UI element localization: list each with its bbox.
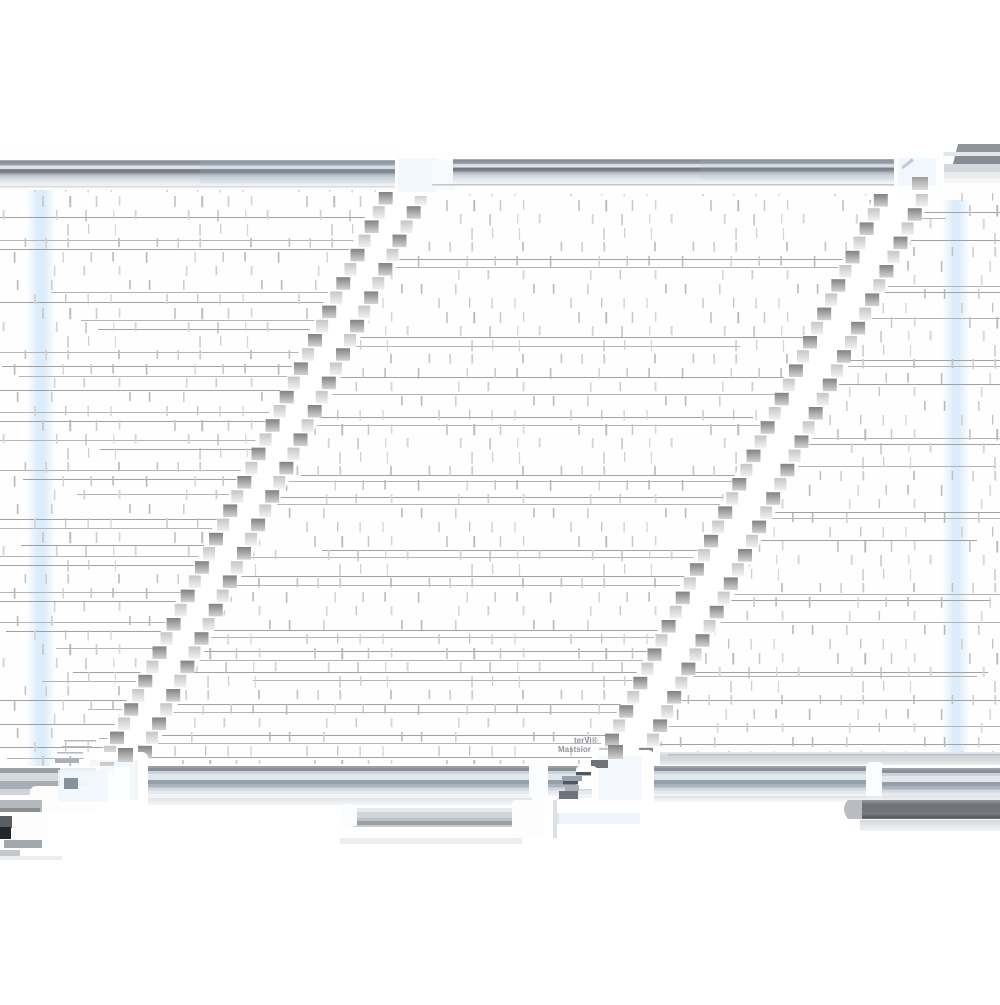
svg-text:terVi®: terVi® — [574, 736, 598, 745]
svg-text:Mastsior: Mastsior — [558, 745, 591, 754]
